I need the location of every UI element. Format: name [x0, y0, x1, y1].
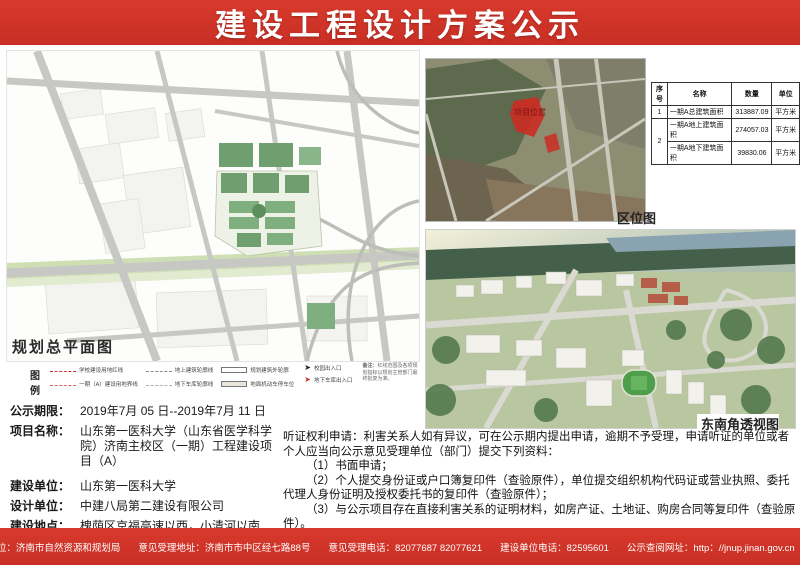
master-plan-label: 规划总平面图	[12, 336, 114, 357]
area-table: 序号 名称 数量 单位 1 一期A总建筑面积 313887.09 平方米 2 一…	[651, 82, 800, 165]
owner-label: 建设单位：	[10, 479, 80, 494]
info-row-period: 公示期限： 2019年7月 05 日--2019年7月 11 日	[10, 404, 282, 419]
owner-value: 山东第一医科大学	[80, 479, 282, 494]
hearing-paragraph: 听证权利申请：利害关系人如有异议，可在公示期内提出申请，逾期不予受理，申请听证的…	[283, 430, 796, 459]
legend-items: 学校建设用地红线 地上建筑轮廓线 规划建筑外轮廓 一期（A）建设用地界线 地下车…	[50, 363, 294, 390]
legend-item: 地下车库轮廓线	[146, 377, 214, 390]
marker-label: 项目位置	[514, 107, 546, 117]
project-name-value: 山东第一医科大学（山东省医学科学院）济南主校区（一期）工程建设项目（A）	[80, 424, 282, 469]
info-row-designer: 设计单位： 中建八局第二建设有限公司	[10, 499, 282, 514]
garage-entrance-arrow-icon: ➤	[304, 375, 311, 385]
legend-item: ➤地下车库出入口	[304, 375, 352, 385]
footer-website-url: 公示查阅网址：http：//jnup.jinan.gov.cn	[627, 540, 795, 554]
info-row-owner: 建设单位： 山东第一医科大学	[10, 479, 282, 494]
garage-outline-symbol	[146, 385, 172, 386]
legend-item: 地面机动车停车位	[221, 377, 294, 390]
header-banner: 建设工程设计方案公示	[0, 0, 800, 45]
phase-boundary-symbol	[50, 385, 76, 386]
legend-title: 图例	[30, 367, 40, 397]
master-plan-image	[6, 50, 420, 362]
footer-owner-phone: 建设单位电话：82595601	[500, 540, 609, 554]
table-row: 2 一期A地上建筑面积 274057.03 平方米	[652, 119, 800, 142]
col-header-no: 序号	[652, 83, 668, 106]
perspective-drawing	[426, 230, 795, 428]
col-header-qty: 数量	[732, 83, 772, 106]
col-header-unit: 单位	[772, 83, 800, 106]
footer-accept-unit: 意见受理单位：济南市自然资源和规划局	[0, 540, 120, 554]
legend: 图例 学校建设用地红线 地上建筑轮廓线 规划建筑外轮廓 一期（A）建设用地界线 …	[30, 363, 418, 397]
info-row-name: 项目名称： 山东第一医科大学（山东省医学科学院）济南主校区（一期）工程建设项目（…	[10, 424, 282, 469]
footer-accept-address: 意见受理地址：济南市市中区经七路88号	[138, 540, 310, 554]
legend-item: 一期（A）建设用地界线	[50, 377, 138, 390]
note-label: 备注：	[363, 363, 378, 369]
location-map-image: 项目位置	[425, 58, 646, 222]
legend-item: ➤校园出入口	[304, 363, 352, 373]
hearing-item-2: （2）个人提交身份证或户口簿复印件（查验原件），单位提交组织机构代码证或营业执照…	[283, 474, 796, 503]
table-row: 1 一期A总建筑面积 313887.09 平方米	[652, 106, 800, 119]
satellite-drawing: 项目位置	[426, 59, 645, 221]
above-outline-symbol	[146, 371, 172, 372]
page-title: 建设工程设计方案公示	[215, 0, 585, 45]
legend-item: 规划建筑外轮廓	[221, 363, 294, 376]
footer-accept-phone: 意见受理电话：82077687 82077621	[328, 540, 482, 554]
table-row: 一期A地下建筑面积 39830.06 平方米	[652, 142, 800, 165]
table-header-row: 序号 名称 数量 单位	[652, 83, 800, 106]
hearing-item-1: （1）书面申请；	[283, 459, 796, 474]
public-notice-poster: 建设工程设计方案公示	[0, 0, 800, 565]
footer-banner: 意见受理单位：济南市自然资源和规划局 意见受理地址：济南市市中区经七路88号 意…	[0, 528, 800, 565]
project-name-label: 项目名称：	[10, 424, 80, 469]
legend-note: 备注：红线范围及各项规划指标以规划主管部门最终批复为准。	[363, 363, 418, 383]
campus-entrance-arrow-icon: ➤	[304, 363, 311, 373]
period-value: 2019年7月 05 日--2019年7月 11 日	[80, 404, 282, 419]
campus-buildings	[215, 143, 322, 256]
designer-label: 设计单位：	[10, 499, 80, 514]
project-info: 公示期限： 2019年7月 05 日--2019年7月 11 日 项目名称： 山…	[10, 404, 282, 539]
perspective-image	[425, 229, 796, 429]
south-green-patch	[307, 303, 335, 329]
legend-arrows: ➤校园出入口 ➤地下车库出入口	[304, 363, 352, 385]
col-header-name: 名称	[667, 83, 732, 106]
parking-symbol	[221, 381, 247, 387]
sports-field	[622, 370, 656, 396]
master-plan-drawing	[7, 51, 419, 361]
building-outline-symbol	[221, 367, 247, 373]
period-label: 公示期限：	[10, 404, 80, 419]
designer-value: 中建八局第二建设有限公司	[80, 499, 282, 514]
legend-item: 地上建筑轮廓线	[146, 363, 214, 376]
legend-item: 学校建设用地红线	[50, 363, 138, 376]
redline-symbol	[50, 371, 76, 372]
location-map-label: 区位图	[617, 208, 656, 227]
